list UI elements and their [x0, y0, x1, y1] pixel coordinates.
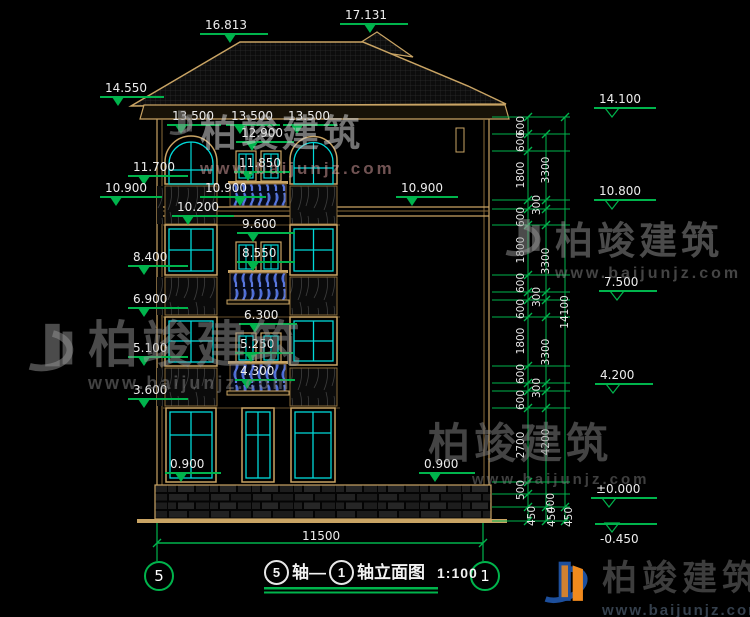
cad-elevation-drawing: 16.813 17.131 14.550 13.500 13.500 13.50…	[0, 0, 750, 617]
elevation-triangle-icon	[429, 473, 441, 482]
elevation-line	[419, 472, 475, 474]
elevation-line	[200, 33, 268, 35]
elevation-value: 17.131	[345, 9, 387, 22]
elevation-triangle-icon	[175, 125, 187, 134]
elevation-value: 13.500	[172, 110, 214, 123]
elevation-triangle-icon	[138, 399, 150, 408]
dimension-label: 600	[516, 364, 527, 384]
elevation-triangle-icon	[112, 97, 124, 106]
elevation-triangle-icon	[241, 380, 253, 389]
elevation-value: 4.200	[600, 369, 634, 382]
elevation-line	[128, 307, 188, 309]
elevation-value: 10.900	[105, 182, 147, 195]
elevation-line	[237, 261, 295, 263]
dimension-label: 300	[532, 287, 543, 307]
dimension-label: 3300	[541, 248, 552, 275]
elevation-value: 13.500	[231, 110, 273, 123]
elevation-line	[396, 196, 458, 198]
elevation-line	[167, 124, 221, 126]
elevation-line	[283, 124, 337, 126]
elevation-line	[128, 356, 188, 358]
elevation-value: 9.600	[242, 218, 276, 231]
elevation-line	[237, 232, 295, 234]
dimension-label: 3300	[541, 339, 552, 366]
elevation-line	[128, 398, 188, 400]
elevation-line	[340, 23, 408, 25]
title-scale: 1:100	[437, 566, 478, 580]
title-axis-bubble-start: 5	[264, 560, 289, 585]
elevation-line	[128, 265, 188, 267]
elevation-value: 0.900	[424, 458, 458, 471]
elevation-line	[200, 196, 266, 198]
elevation-line	[235, 352, 293, 354]
elevation-triangle-icon	[247, 262, 259, 271]
elevation-triangle-icon	[138, 308, 150, 317]
elevation-triangle-icon	[291, 125, 303, 134]
elevation-value: 0.900	[170, 458, 204, 471]
elevation-triangle-icon	[249, 324, 261, 333]
dimension-label: 450	[547, 507, 558, 527]
elevation-triangle-icon	[245, 353, 257, 362]
elevation-value: 14.100	[599, 93, 641, 106]
dimension-label: 600	[516, 273, 527, 293]
elevation-line	[594, 107, 656, 109]
elevation-line	[128, 175, 188, 177]
elevation-value: 10.800	[599, 185, 641, 198]
bottom-dimension-label: 11500	[302, 530, 340, 542]
drawing-title: 5轴—1轴立面图1:100	[264, 560, 478, 585]
elevation-line	[100, 196, 162, 198]
elevation-value: 6.300	[244, 309, 278, 322]
elevation-value: 8.550	[242, 247, 276, 260]
dimension-label: 3300	[541, 157, 552, 184]
elevation-triangle-icon	[110, 197, 122, 206]
elevation-line	[236, 141, 294, 143]
elevation-line	[594, 199, 656, 201]
elevation-triangle-icon	[175, 473, 187, 482]
elevation-value: 4.300	[240, 365, 274, 378]
dimension-label: 4200	[541, 429, 552, 456]
dimension-label: 2700	[516, 432, 527, 459]
elevation-triangle-icon	[138, 266, 150, 275]
dimension-label: 600	[516, 390, 527, 410]
elevation-value: 13.500	[288, 110, 330, 123]
elevation-value: 11.850	[239, 157, 281, 170]
elevation-line	[234, 171, 290, 173]
elevation-triangle-icon	[138, 357, 150, 366]
elevation-triangle-icon	[224, 34, 236, 43]
dimension-label: 1800	[516, 328, 527, 355]
elevation-triangle-icon	[246, 142, 258, 151]
dimension-label: 600	[516, 299, 527, 319]
elevation-value: 10.200	[177, 201, 219, 214]
dimension-label: 14100	[560, 295, 571, 328]
elevation-value: 11.700	[133, 161, 175, 174]
dimension-label: 450	[564, 507, 575, 527]
dimension-label: 450	[527, 506, 538, 526]
elevation-value: 16.813	[205, 19, 247, 32]
dimension-label: 600	[516, 132, 527, 152]
elevation-line	[239, 323, 297, 325]
elevation-triangle-icon	[242, 172, 254, 181]
axis-bubble-5: 5	[144, 561, 174, 591]
elevation-value: 3.600	[133, 384, 167, 397]
dimension-label: 500	[516, 480, 527, 500]
elevation-line	[599, 290, 657, 292]
elevation-line	[595, 523, 657, 525]
elevation-line	[591, 497, 657, 499]
elevation-value: 8.400	[133, 251, 167, 264]
elevation-line	[235, 379, 295, 381]
elevation-line	[172, 215, 234, 217]
elevation-value: 5.250	[240, 338, 274, 351]
elevation-value: 14.550	[105, 82, 147, 95]
dimension-label: 600	[516, 207, 527, 227]
elevation-triangle-icon	[364, 24, 376, 33]
elevation-value: 7.500	[604, 276, 638, 289]
elevation-triangle-icon	[234, 197, 246, 206]
elevation-line	[595, 383, 653, 385]
elevation-value: 10.900	[205, 182, 247, 195]
title-text: 轴立面图	[357, 564, 425, 581]
elevation-value: 10.900	[401, 182, 443, 195]
elevation-line	[100, 96, 164, 98]
dimension-label: 1800	[516, 162, 527, 189]
elevation-value: ±0.000	[596, 483, 640, 496]
elevation-value: 12.900	[241, 127, 283, 140]
elevation-value: 6.900	[133, 293, 167, 306]
elevation-value: 5.100	[133, 342, 167, 355]
elevation-triangle-icon	[247, 233, 259, 242]
title-axis-bubble-end: 1	[329, 560, 354, 585]
dimension-label: 1800	[516, 237, 527, 264]
elevation-value: -0.450	[600, 533, 639, 546]
elevation-line	[165, 472, 221, 474]
elevation-triangle-icon	[182, 216, 194, 225]
elevation-triangle-icon	[406, 197, 418, 206]
dimension-label: 300	[532, 195, 543, 215]
title-text: 轴—	[292, 564, 326, 581]
dimension-label: 300	[532, 378, 543, 398]
